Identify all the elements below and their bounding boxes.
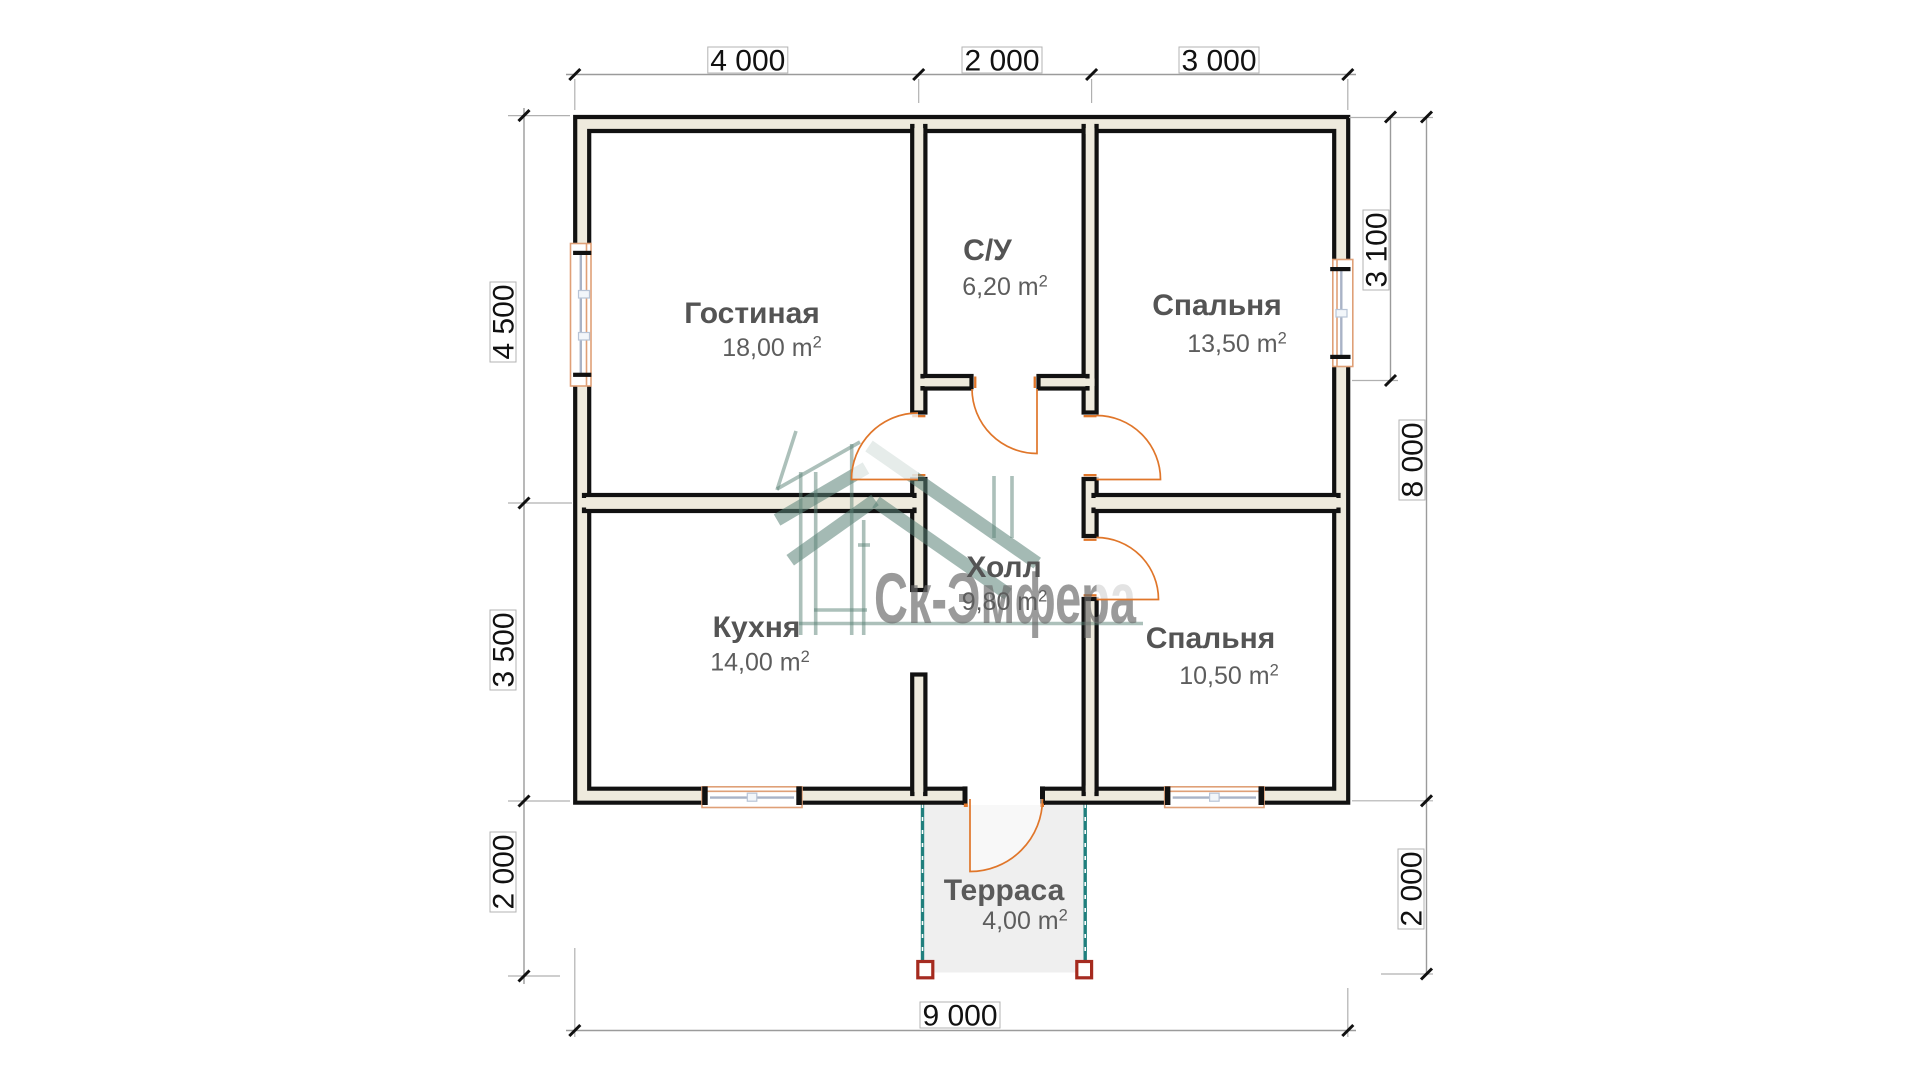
svg-text:Гостиная: Гостиная — [684, 297, 820, 330]
svg-text:Терраса: Терраса — [944, 874, 1065, 907]
svg-text:Спальня: Спальня — [1152, 289, 1282, 322]
svg-text:4,00 m2: 4,00 m2 — [982, 907, 1068, 936]
svg-text:Кухня: Кухня — [713, 611, 801, 644]
svg-text:2 000: 2 000 — [964, 45, 1039, 78]
svg-text:9 000: 9 000 — [922, 1000, 997, 1033]
svg-text:2 000: 2 000 — [488, 834, 521, 909]
svg-text:10,50 m2: 10,50 m2 — [1179, 662, 1279, 691]
svg-text:С/У: С/У — [963, 234, 1012, 267]
svg-text:3 500: 3 500 — [488, 612, 521, 687]
svg-text:6,20 m2: 6,20 m2 — [962, 273, 1048, 302]
svg-text:13,50 m2: 13,50 m2 — [1187, 330, 1287, 359]
svg-text:Спальня: Спальня — [1146, 622, 1276, 655]
svg-text:3 000: 3 000 — [1181, 45, 1256, 78]
svg-text:9,80 m2: 9,80 m2 — [962, 588, 1048, 617]
svg-text:4 000: 4 000 — [710, 45, 785, 78]
svg-text:14,00 m2: 14,00 m2 — [710, 648, 810, 677]
svg-text:8 000: 8 000 — [1397, 422, 1430, 497]
svg-text:4 500: 4 500 — [488, 284, 521, 359]
svg-text:Холл: Холл — [966, 551, 1041, 584]
svg-text:2 000: 2 000 — [1396, 851, 1429, 926]
svg-text:18,00 m2: 18,00 m2 — [722, 334, 822, 363]
svg-text:3 100: 3 100 — [1361, 212, 1394, 287]
